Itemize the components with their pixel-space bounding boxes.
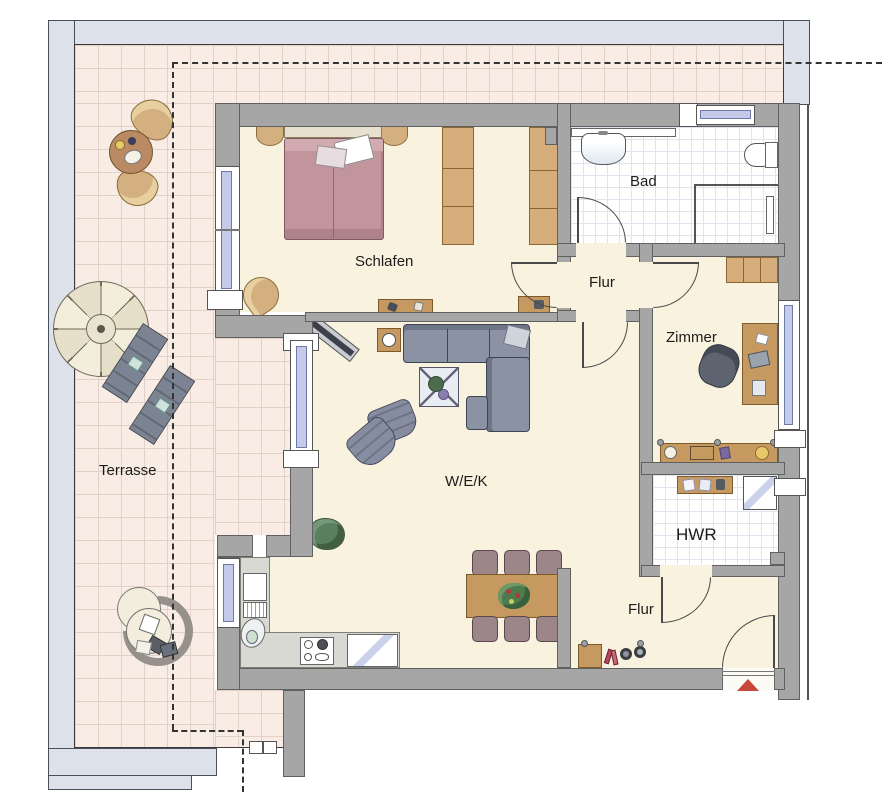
faucet-icon — [598, 131, 608, 135]
shelf-lamp-icon — [664, 446, 677, 459]
room-label-hwr: HWR — [676, 525, 717, 545]
wardrobe-shelf-line — [530, 208, 558, 209]
terrace-door-opening — [252, 535, 267, 557]
sofa-seam — [447, 329, 448, 362]
outer-band-bottom-step — [48, 775, 192, 790]
burner-icon — [304, 640, 313, 649]
cup-icon — [115, 140, 125, 150]
window-sill — [207, 290, 243, 310]
door-opening-zimmer — [639, 262, 653, 308]
terrace-edge-right — [783, 44, 784, 103]
room-label-schlafen: Schlafen — [355, 253, 413, 270]
wall — [217, 668, 785, 690]
dining-chair — [472, 550, 498, 576]
nightstand-icon — [380, 124, 408, 146]
room-label-flur-sued: Flur — [628, 601, 654, 618]
wardrobe-shelf-line — [443, 206, 473, 207]
plant-icon — [309, 518, 345, 550]
door-opening-schlafen — [557, 262, 571, 308]
room-label-flur-mitte: Flur — [589, 274, 615, 291]
terrace-tiles-mid — [215, 338, 290, 535]
kitchen-sink-basin — [246, 630, 258, 644]
shower-partition — [694, 184, 696, 243]
terrace-step — [263, 741, 277, 754]
window-glass — [223, 564, 234, 622]
zimmer-cabinet — [726, 257, 778, 283]
window-glass — [296, 346, 307, 448]
bench-item — [413, 301, 424, 312]
window-glass — [784, 305, 793, 425]
lounge-pillow — [135, 640, 152, 655]
wardrobe-shelf-line — [530, 170, 558, 171]
terrace-step — [249, 741, 263, 754]
hwr-item — [716, 479, 725, 490]
terrace-tiles-top — [75, 45, 783, 103]
overhang-dashed-line — [172, 730, 243, 732]
overhang-dashed-line — [172, 62, 174, 730]
room-label-zimmer: Zimmer — [666, 329, 717, 346]
shelf-lamp-icon — [755, 446, 769, 460]
floor-plan: Terrasse Schlafen Bad Flur Zimmer W/E/K … — [0, 0, 882, 800]
outer-band-bottom — [48, 748, 217, 776]
wardrobe — [442, 127, 474, 245]
helmet-icon — [620, 648, 632, 660]
table-ball-icon — [438, 389, 449, 400]
entrance-threshold — [722, 675, 775, 676]
shelf-item — [719, 446, 731, 460]
table-flowers-dots — [506, 589, 511, 594]
washing-machine-icon — [743, 476, 777, 510]
window-sill — [774, 430, 806, 448]
shelf-post — [714, 439, 721, 446]
hook-post — [581, 640, 588, 647]
shower-partition — [694, 184, 778, 186]
burner-icon — [315, 653, 329, 661]
dining-chair — [472, 616, 498, 642]
window-glass — [700, 110, 751, 119]
cabinet-divider — [760, 258, 761, 282]
door-opening-hwr — [660, 565, 712, 577]
window-sill — [283, 450, 319, 468]
nightstand-icon — [256, 124, 284, 146]
sofa-chaise — [466, 396, 488, 430]
room-label-terrasse: Terrasse — [99, 462, 157, 479]
outer-band-left — [48, 20, 75, 777]
bed-pillow — [315, 145, 347, 169]
burner-icon — [304, 653, 312, 661]
terrace-tiles-bottom — [215, 690, 283, 748]
sofa-right-section — [486, 357, 530, 432]
entrance-arrow-icon — [737, 679, 759, 691]
desk-tray — [752, 380, 766, 396]
shower-glass-panel — [766, 196, 774, 234]
shelf-books — [690, 446, 714, 460]
toilet-tank — [765, 142, 778, 168]
room-label-bad: Bad — [630, 173, 657, 190]
dishwasher-icon — [347, 634, 398, 667]
outer-band-top — [48, 20, 810, 45]
helmet-icon — [634, 646, 646, 658]
wardrobe-shelf-line — [443, 168, 473, 169]
dining-chair — [504, 550, 530, 576]
terrace-edge-left — [74, 44, 75, 748]
entrance-threshold — [722, 671, 775, 672]
exterior-face-line — [807, 105, 809, 700]
bath-sink-icon — [581, 133, 626, 165]
overhang-dashed-line — [172, 62, 882, 64]
hwr-linen — [698, 478, 711, 491]
wall — [557, 568, 571, 668]
wall-pillar — [545, 127, 557, 145]
terrace-edge-top — [75, 44, 783, 45]
wall — [641, 462, 785, 475]
bowl-icon — [128, 137, 136, 145]
fridge-icon — [243, 573, 267, 601]
dining-chair — [504, 616, 530, 642]
lamp-icon — [382, 333, 396, 347]
window-divider — [215, 229, 240, 231]
hook-post — [637, 640, 644, 647]
wall — [305, 312, 571, 322]
door-opening-bad — [576, 243, 626, 257]
window-sill — [774, 478, 806, 496]
room-label-wek: W/E/K — [445, 473, 488, 490]
parasol-pole — [97, 325, 105, 333]
drainer-icon — [243, 602, 267, 618]
hwr-linen — [682, 478, 696, 492]
wall-pillar — [770, 552, 785, 565]
burner-icon — [317, 639, 328, 650]
shoe-rack — [578, 644, 602, 668]
overhang-dashed-line — [242, 730, 244, 792]
wall-stub — [283, 690, 305, 777]
cabinet-divider — [743, 258, 744, 282]
shelf-post — [657, 439, 664, 446]
door-opening-wek — [576, 310, 626, 322]
